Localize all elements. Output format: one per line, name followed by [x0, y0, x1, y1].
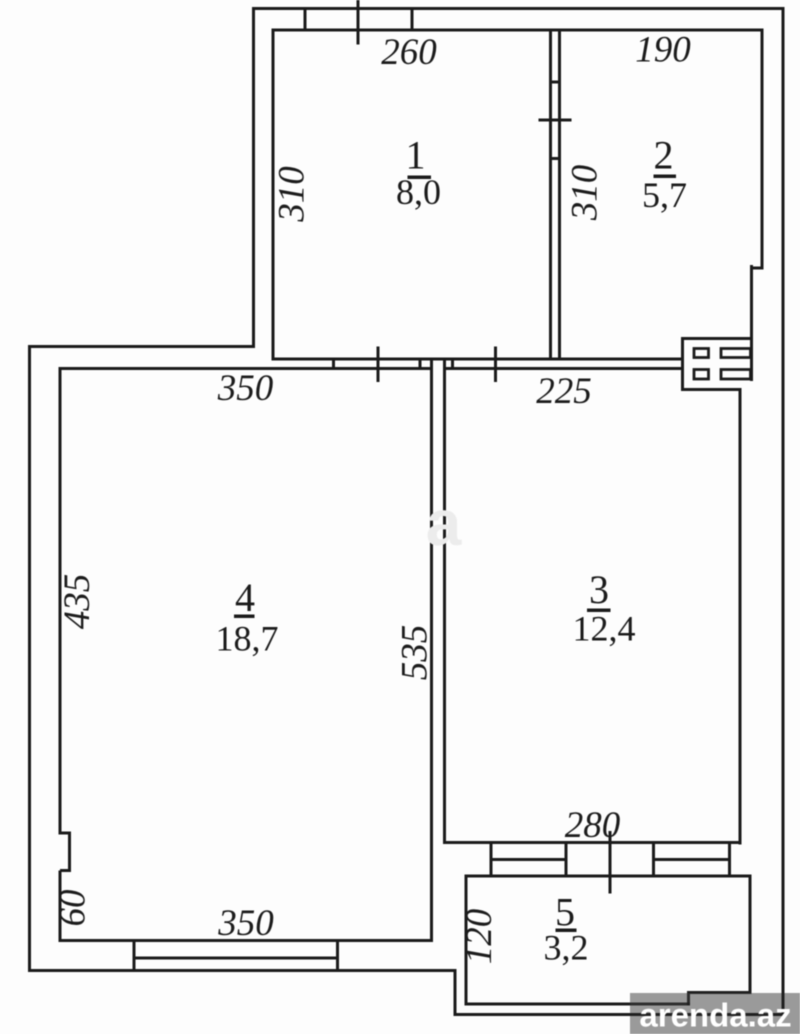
- svg-text:8,0: 8,0: [396, 172, 441, 212]
- svg-text:a: a: [426, 487, 462, 559]
- svg-text:2: 2: [654, 133, 674, 178]
- svg-text:4: 4: [235, 575, 255, 620]
- svg-text:18,7: 18,7: [216, 619, 279, 659]
- svg-text:310: 310: [565, 164, 606, 221]
- svg-text:190: 190: [635, 30, 691, 71]
- svg-text:1: 1: [406, 133, 426, 178]
- svg-text:3,2: 3,2: [544, 928, 589, 968]
- svg-text:435: 435: [57, 574, 98, 630]
- svg-text:60: 60: [53, 889, 94, 927]
- svg-text:3: 3: [589, 567, 609, 612]
- svg-text:280: 280: [565, 805, 621, 846]
- svg-text:260: 260: [381, 32, 437, 73]
- svg-text:120: 120: [459, 908, 500, 964]
- svg-text:310: 310: [272, 166, 313, 223]
- svg-text:225: 225: [536, 371, 592, 412]
- svg-text:12,4: 12,4: [573, 609, 636, 649]
- svg-text:arenda.az: arenda.az: [639, 997, 791, 1034]
- svg-text:5,7: 5,7: [642, 175, 687, 215]
- svg-text:350: 350: [217, 368, 274, 409]
- svg-text:350: 350: [217, 903, 274, 944]
- svg-text:535: 535: [395, 625, 436, 681]
